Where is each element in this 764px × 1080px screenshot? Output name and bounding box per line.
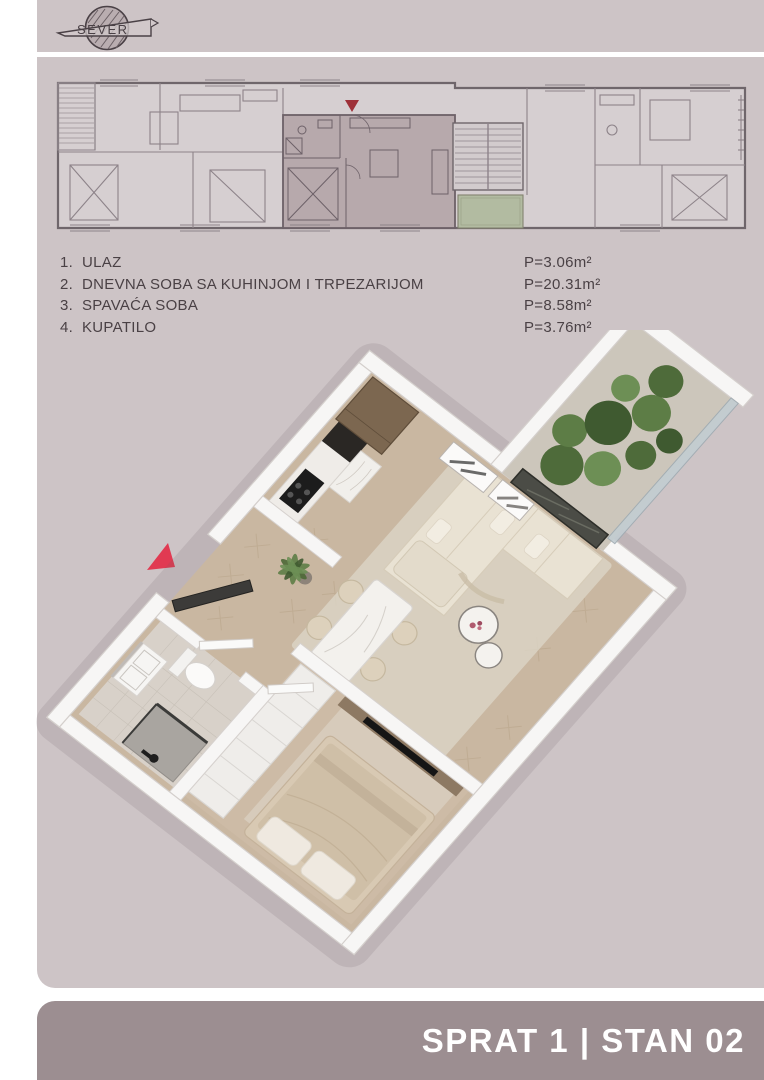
legend-row: 1.ULAZ P=3.06m² [60, 252, 720, 274]
legend-room-area: P=8.58m² [524, 295, 592, 317]
legend-room-name: ULAZ [82, 254, 122, 271]
footer-bar: SPRAT 1 | STAN 02 [37, 1001, 764, 1080]
legend-number: 1. [60, 252, 82, 274]
unit-highlight-2d [283, 115, 455, 228]
legend-row: 3.SPAVAĆA SOBA P=8.58m² [60, 295, 720, 317]
sever-logo: SEVER [55, 3, 165, 53]
legend-room-name: DNEVNA SOBA SA KUHINJOM I TRPEZARIJOM [82, 276, 424, 293]
footer-title: SPRAT 1 | STAN 02 [422, 1022, 764, 1060]
bedroom-door [268, 683, 314, 694]
floor-plan-2d [55, 66, 755, 241]
legend-number: 3. [60, 295, 82, 317]
apartment-render-3d [30, 330, 764, 980]
terrace-2d [458, 195, 523, 228]
brochure-page: SEVER [0, 0, 764, 1080]
legend-row: 2.DNEVNA SOBA SA KUHINJOM I TRPEZARIJOM … [60, 274, 720, 296]
room-legend: 1.ULAZ P=3.06m² 2.DNEVNA SOBA SA KUHINJO… [60, 252, 720, 338]
legend-room-area: P=20.31m² [524, 274, 601, 296]
unit-3d [30, 330, 764, 976]
legend-number: 2. [60, 274, 82, 296]
logo-text: SEVER [77, 22, 129, 37]
legend-room-name: SPAVAĆA SOBA [82, 297, 198, 314]
stairwell-2d [453, 123, 523, 190]
legend-room-area: P=3.06m² [524, 252, 592, 274]
bathroom-door [199, 639, 253, 650]
